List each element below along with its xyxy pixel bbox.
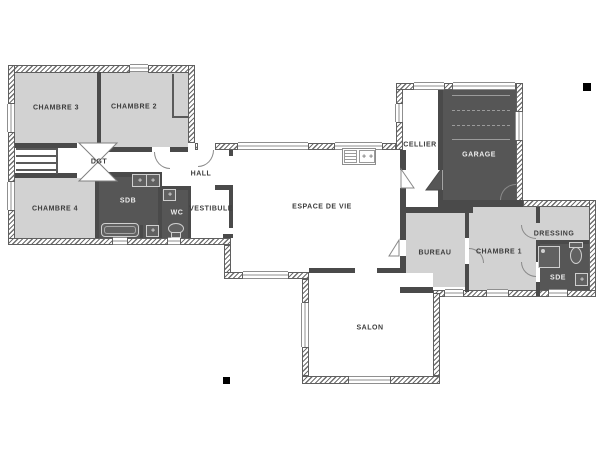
wall-interior [15, 173, 77, 178]
wall-interior [400, 150, 406, 170]
wall-exterior [8, 65, 15, 104]
wall-exterior [8, 132, 15, 182]
window [445, 289, 463, 297]
wall-interior [400, 256, 406, 273]
window [349, 376, 390, 384]
wall-exterior [516, 140, 523, 207]
wall-exterior [8, 238, 113, 245]
room-label-bureau: BUREAU [419, 250, 452, 257]
room-label-chambre-4: CHAMBRE 4 [32, 206, 78, 213]
window [549, 289, 567, 297]
wall-interior [465, 264, 469, 292]
room-label-cellier: CELLIER [403, 142, 436, 149]
hall-door-arc [154, 152, 170, 169]
room-label-dgt: DGT [91, 159, 107, 166]
window [168, 237, 180, 245]
wall-interior [170, 147, 188, 152]
washer-icon: + [146, 225, 159, 237]
room-label-hall: HALL [191, 171, 212, 178]
sde-toilet-icon [570, 247, 582, 264]
closet-shelf [16, 155, 57, 157]
bathtub-icon [101, 223, 139, 237]
room-vestibule [191, 190, 229, 238]
bureau-door-swing [387, 239, 401, 258]
room-label-espace-de-vie: ESPACE DE VIE [292, 204, 352, 211]
window [113, 237, 127, 245]
wall-interior [400, 287, 433, 293]
wall-exterior [195, 143, 198, 150]
wall-exterior [396, 122, 403, 150]
wall-exterior [390, 376, 440, 384]
room-label-dressing: DRESSING [534, 231, 575, 238]
window [243, 271, 288, 279]
kitchen-sink-icon: + + [342, 148, 376, 165]
wall-interior [140, 225, 143, 238]
wall-interior [400, 213, 406, 240]
wall-interior [536, 282, 540, 296]
room-label-sdb: SDB [120, 198, 136, 205]
wc-sink-icon: + [163, 189, 176, 201]
wall-exterior [180, 238, 231, 245]
garage-door-line [452, 95, 510, 96]
room-garage [443, 90, 516, 200]
garage-door-line [452, 125, 510, 126]
wall-interior [309, 268, 355, 273]
wall-exterior [224, 272, 243, 279]
plan-marker [583, 83, 591, 91]
window [7, 104, 15, 132]
closet-shelf [16, 162, 57, 164]
wall-interior [229, 150, 233, 156]
room-label-chambre-3: CHAMBRE 3 [33, 105, 79, 112]
garage-door-line [452, 110, 510, 111]
wall-interior [440, 200, 523, 207]
shower-icon [538, 246, 560, 268]
garage-door-line [452, 139, 510, 140]
wall-exterior [523, 200, 596, 207]
closet-line [172, 74, 174, 117]
room-label-chambre-1: CHAMBRE 1 [476, 249, 522, 256]
wall-exterior [127, 238, 168, 245]
closet-shelf [16, 169, 57, 171]
window [395, 104, 403, 122]
window [7, 182, 15, 210]
room-label-wc: WC [171, 210, 184, 217]
window [487, 289, 508, 297]
closet-line [172, 116, 188, 118]
room-label-chambre-2: CHAMBRE 2 [111, 104, 157, 111]
wall-exterior [516, 83, 523, 112]
wall-interior [536, 207, 540, 223]
window [301, 303, 309, 347]
wall-exterior [188, 65, 195, 143]
wall-exterior [224, 245, 231, 273]
window [238, 142, 308, 150]
garage-door-opening [453, 82, 515, 90]
wall-exterior [308, 143, 335, 150]
wall-exterior [302, 347, 309, 376]
wall-exterior [382, 143, 396, 150]
toilet-tank [171, 232, 181, 238]
wall-exterior [589, 200, 596, 297]
garage-cellier-door-swing [424, 166, 444, 192]
wall-exterior [288, 272, 309, 279]
window [414, 82, 444, 90]
cellier-door-swing [400, 168, 416, 190]
wall-interior [465, 213, 469, 238]
wall-exterior [215, 143, 238, 150]
wall-interior [97, 72, 101, 143]
window [515, 112, 523, 140]
room-label-salon: SALON [357, 325, 384, 332]
wall-exterior [433, 293, 440, 376]
wall-exterior [302, 376, 349, 384]
wall-interior [223, 234, 233, 238]
floorplan: + + + + + + + CHAMBRE 3 CHAMBRE 2 DGT CH… [0, 0, 600, 450]
wall-exterior [8, 65, 130, 73]
wall-exterior [508, 290, 549, 297]
room-label-garage: GARAGE [462, 152, 496, 159]
wall-interior [95, 177, 99, 238]
wall-exterior [567, 290, 596, 297]
window [130, 64, 148, 72]
plan-marker [223, 377, 230, 384]
wall-exterior [302, 279, 309, 303]
closet-shelf [16, 148, 57, 150]
wall-interior [400, 207, 473, 213]
room-label-vestibule: VESTIBULE [189, 206, 233, 213]
closet-shelf [56, 148, 58, 174]
wall-exterior [444, 83, 453, 90]
wall-exterior [396, 83, 414, 90]
room-label-sde: SDE [550, 275, 566, 282]
double-sink-icon: + + [132, 174, 160, 187]
sde-sink-icon: + [575, 273, 588, 286]
wall-interior [438, 90, 443, 170]
